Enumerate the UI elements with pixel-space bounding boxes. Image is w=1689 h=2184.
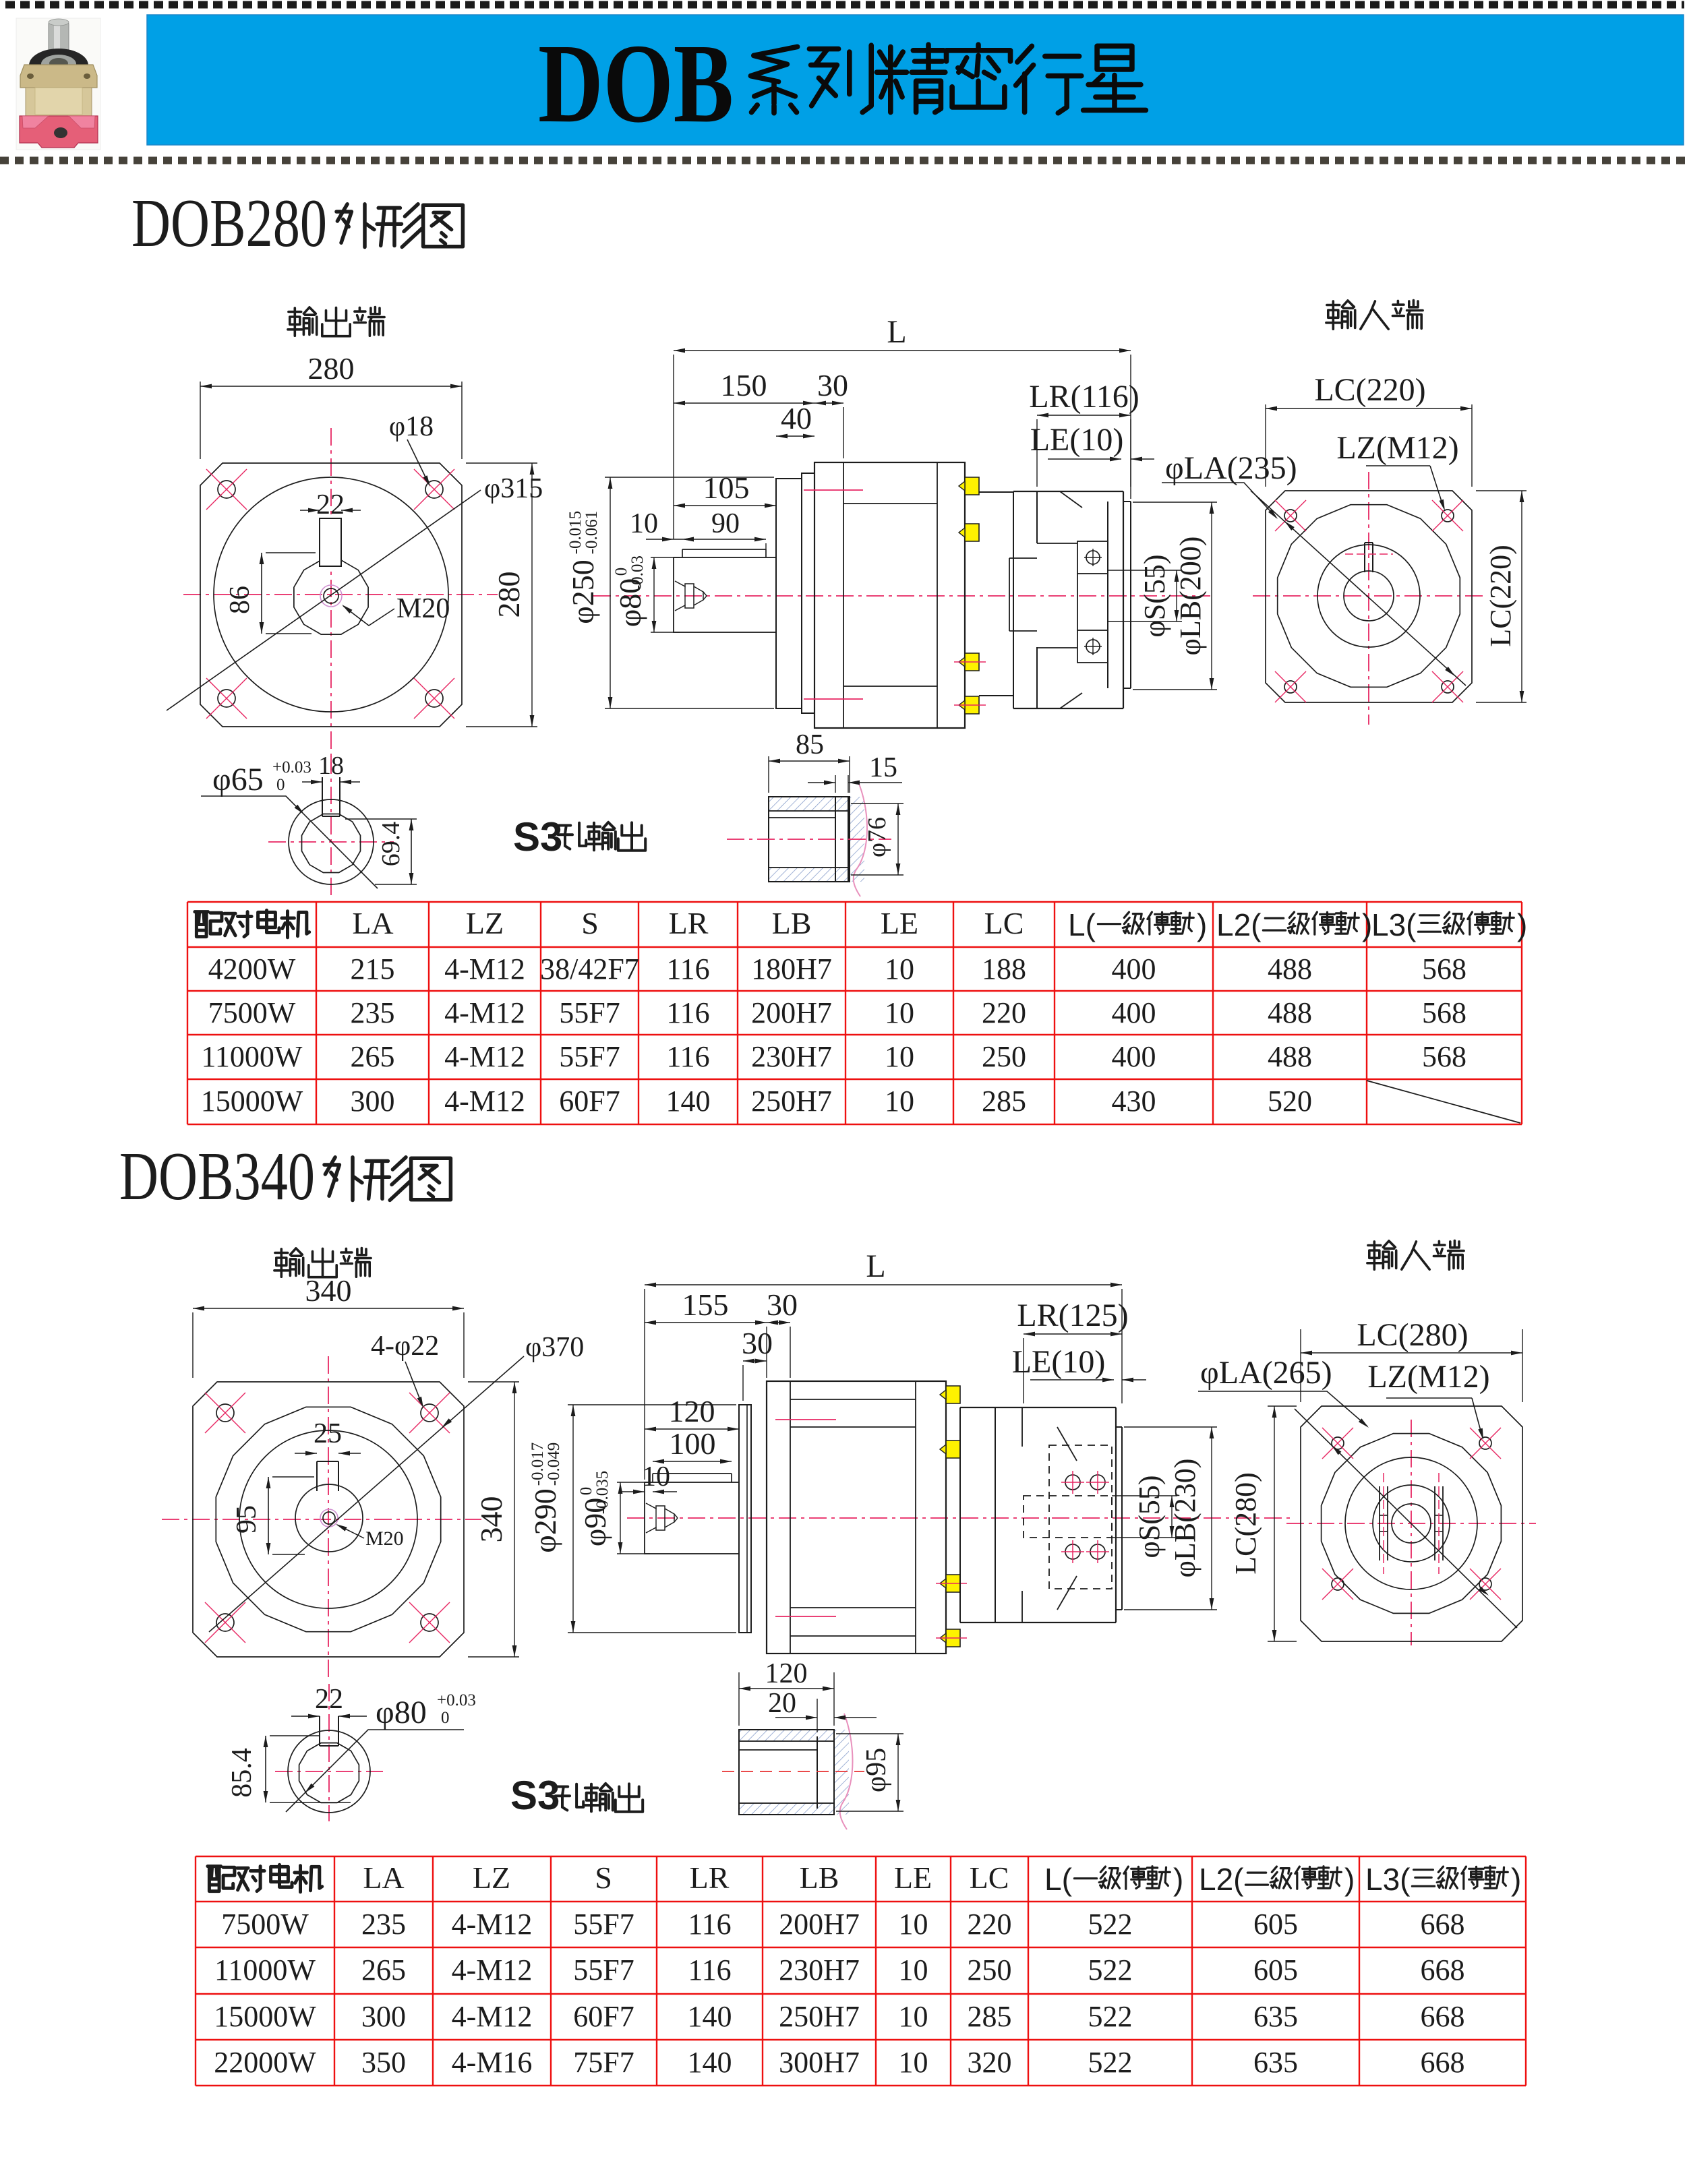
- svg-text:75F7: 75F7: [573, 2046, 634, 2079]
- svg-text:φLA(235): φLA(235): [1165, 450, 1297, 486]
- svg-text:10: 10: [642, 1461, 670, 1492]
- svg-text:φ18: φ18: [389, 411, 434, 442]
- svg-text:4-M16: 4-M16: [452, 2046, 533, 2079]
- svg-text:200H7: 200H7: [779, 1908, 860, 1941]
- svg-text:20: 20: [768, 1688, 796, 1719]
- svg-text:11000W: 11000W: [214, 1953, 316, 1986]
- svg-text:4-M12: 4-M12: [452, 2000, 533, 2033]
- svg-text:116: 116: [666, 996, 709, 1029]
- svg-text:L: L: [866, 1248, 885, 1284]
- svg-text:522: 522: [1088, 1908, 1133, 1941]
- svg-text:95: 95: [231, 1505, 262, 1534]
- svg-text:LC(220): LC(220): [1314, 372, 1425, 408]
- svg-text:488: 488: [1268, 996, 1312, 1029]
- svg-text:69.4: 69.4: [377, 822, 405, 867]
- svg-text:300: 300: [351, 1085, 395, 1118]
- svg-text:22: 22: [315, 1684, 343, 1715]
- svg-text:10: 10: [885, 1040, 914, 1073]
- svg-text:22: 22: [316, 489, 345, 520]
- svg-text:LE(10): LE(10): [1030, 422, 1124, 458]
- svg-text:668: 668: [1421, 2046, 1465, 2079]
- svg-text:DOB340: DOB340: [119, 1139, 315, 1215]
- svg-text:22000W: 22000W: [214, 2046, 316, 2079]
- svg-text:): ): [1197, 907, 1207, 942]
- svg-text:430: 430: [1112, 1085, 1156, 1118]
- svg-text:LA: LA: [363, 1860, 404, 1895]
- svg-text:400: 400: [1112, 952, 1156, 985]
- svg-text:85: 85: [796, 729, 824, 760]
- svg-text:230H7: 230H7: [751, 1040, 832, 1073]
- svg-text:568: 568: [1422, 1040, 1466, 1073]
- svg-text:LC: LC: [970, 1860, 1009, 1895]
- svg-text:LC(280): LC(280): [1229, 1472, 1262, 1575]
- svg-text:LE: LE: [894, 1860, 932, 1895]
- svg-text:φ315: φ315: [484, 473, 543, 504]
- svg-text:280: 280: [492, 572, 526, 618]
- svg-text:LB: LB: [800, 1860, 839, 1895]
- svg-text:LC(280): LC(280): [1357, 1317, 1468, 1353]
- svg-text:350: 350: [361, 2046, 406, 2079]
- svg-text:S: S: [581, 906, 599, 940]
- svg-text:φ65: φ65: [212, 762, 264, 797]
- svg-text:LE: LE: [881, 906, 918, 940]
- svg-text:300: 300: [361, 2000, 406, 2033]
- svg-text:25: 25: [314, 1418, 342, 1449]
- svg-text:250H7: 250H7: [751, 1085, 832, 1118]
- svg-text:140: 140: [688, 2000, 732, 2033]
- svg-text:522: 522: [1088, 2000, 1133, 2033]
- svg-text:LC: LC: [984, 906, 1024, 940]
- svg-text:635: 635: [1253, 2000, 1298, 2033]
- svg-text:30: 30: [742, 1326, 773, 1360]
- svg-text:86: 86: [225, 586, 256, 614]
- svg-text:265: 265: [361, 1953, 406, 1986]
- svg-text:S: S: [595, 1860, 612, 1895]
- svg-text:635: 635: [1253, 2046, 1298, 2079]
- svg-text:φS(55): φS(55): [1138, 554, 1171, 637]
- svg-text:LZ: LZ: [466, 906, 504, 940]
- svg-text:116: 116: [688, 1953, 731, 1986]
- svg-text:φS(55): φS(55): [1133, 1475, 1166, 1558]
- svg-text:7500W: 7500W: [221, 1908, 309, 1941]
- svg-text:220: 220: [982, 996, 1026, 1029]
- svg-text:250H7: 250H7: [779, 2000, 860, 2033]
- svg-text:668: 668: [1421, 2000, 1465, 2033]
- svg-text:180H7: 180H7: [751, 952, 832, 985]
- svg-text:L2(: L2(: [1216, 907, 1262, 942]
- svg-text:15000W: 15000W: [201, 1085, 303, 1118]
- svg-text:S3: S3: [510, 1773, 560, 1818]
- svg-text:LA: LA: [352, 906, 393, 940]
- svg-text:LR: LR: [690, 1860, 730, 1895]
- svg-text:488: 488: [1268, 952, 1312, 985]
- svg-text:55F7: 55F7: [559, 996, 620, 1029]
- svg-text:60F7: 60F7: [559, 1085, 620, 1118]
- svg-text:): ): [1173, 1862, 1183, 1897]
- svg-text:7500W: 7500W: [208, 996, 296, 1029]
- svg-text:-0.017: -0.017: [529, 1443, 547, 1486]
- svg-text:605: 605: [1253, 1953, 1298, 1986]
- svg-text:320: 320: [968, 2046, 1012, 2079]
- svg-text:200H7: 200H7: [751, 996, 832, 1029]
- svg-text:LR: LR: [669, 906, 709, 940]
- svg-text:φ370: φ370: [525, 1332, 584, 1363]
- svg-text:4-M12: 4-M12: [444, 1085, 525, 1118]
- svg-text:0: 0: [276, 776, 285, 794]
- svg-text:4200W: 4200W: [208, 952, 296, 985]
- svg-text:285: 285: [982, 1085, 1026, 1118]
- svg-text:): ): [1517, 907, 1527, 942]
- svg-text:340: 340: [305, 1273, 352, 1308]
- svg-text:38/42F7: 38/42F7: [540, 952, 639, 985]
- svg-text:10: 10: [885, 952, 914, 985]
- svg-text:LR(116): LR(116): [1029, 379, 1139, 415]
- svg-text:-0.035: -0.035: [593, 1471, 612, 1515]
- svg-text:250: 250: [982, 1040, 1026, 1073]
- svg-text:L2(: L2(: [1199, 1862, 1244, 1897]
- svg-text:605: 605: [1253, 1908, 1298, 1941]
- svg-text:188: 188: [982, 952, 1026, 985]
- svg-text:10: 10: [899, 1953, 928, 1986]
- svg-text:0: 0: [577, 1487, 595, 1496]
- svg-text:φLB(200): φLB(200): [1174, 537, 1207, 656]
- svg-text:40: 40: [781, 401, 812, 435]
- svg-text:400: 400: [1112, 996, 1156, 1029]
- svg-text:30: 30: [767, 1287, 798, 1322]
- svg-text:10: 10: [630, 508, 658, 539]
- svg-text:0: 0: [612, 568, 630, 576]
- svg-text:φ80: φ80: [376, 1695, 427, 1730]
- svg-text:400: 400: [1112, 1040, 1156, 1073]
- svg-text:15000W: 15000W: [214, 2000, 316, 2033]
- svg-text:φ76: φ76: [863, 817, 891, 857]
- svg-text:L3(: L3(: [1365, 1862, 1411, 1897]
- svg-text:): ): [1511, 1862, 1521, 1897]
- svg-text:668: 668: [1421, 1908, 1465, 1941]
- svg-text:L3(: L3(: [1371, 907, 1417, 942]
- svg-text:116: 116: [688, 1908, 731, 1941]
- svg-text:DOB: DOB: [538, 21, 734, 146]
- svg-text:488: 488: [1268, 1040, 1312, 1073]
- svg-text:S3: S3: [513, 814, 562, 859]
- svg-text:100: 100: [670, 1426, 716, 1461]
- svg-text:+0.03: +0.03: [272, 758, 312, 777]
- svg-text:M20: M20: [365, 1527, 404, 1550]
- svg-text:250: 250: [968, 1953, 1012, 1986]
- svg-text:105: 105: [703, 471, 750, 505]
- svg-text:230H7: 230H7: [779, 1953, 860, 1986]
- svg-text:340: 340: [474, 1496, 508, 1543]
- svg-text:LC(220): LC(220): [1484, 545, 1517, 647]
- svg-text:-0.049: -0.049: [545, 1443, 563, 1486]
- svg-text:668: 668: [1421, 1953, 1465, 1986]
- svg-text:568: 568: [1422, 996, 1466, 1029]
- svg-text:L(: L(: [1068, 907, 1096, 942]
- svg-text:140: 140: [688, 2046, 732, 2079]
- svg-text:522: 522: [1088, 1953, 1133, 1986]
- svg-text:55F7: 55F7: [559, 1040, 620, 1073]
- svg-text:10: 10: [899, 1908, 928, 1941]
- svg-text:4-M12: 4-M12: [444, 952, 525, 985]
- svg-text:235: 235: [361, 1908, 406, 1941]
- svg-text:LZ: LZ: [473, 1860, 510, 1895]
- svg-text:10: 10: [899, 2000, 928, 2033]
- svg-text:265: 265: [351, 1040, 395, 1073]
- svg-text:-0.03: -0.03: [628, 555, 647, 590]
- svg-text:120: 120: [765, 1658, 808, 1689]
- svg-text:LZ(M12): LZ(M12): [1367, 1359, 1489, 1395]
- svg-text:55F7: 55F7: [573, 1953, 634, 1986]
- svg-text:520: 520: [1268, 1085, 1312, 1118]
- svg-text:LZ(M12): LZ(M12): [1336, 430, 1458, 466]
- svg-text:φ290: φ290: [528, 1488, 562, 1553]
- svg-text:LB: LB: [772, 906, 812, 940]
- svg-text:+0.03: +0.03: [437, 1691, 476, 1709]
- svg-text:DOB280: DOB280: [131, 185, 327, 262]
- svg-text:10: 10: [885, 1085, 914, 1118]
- svg-text:60F7: 60F7: [573, 2000, 634, 2033]
- svg-text:522: 522: [1088, 2046, 1133, 2079]
- svg-text:280: 280: [308, 351, 355, 386]
- svg-text:LR(125): LR(125): [1017, 1298, 1128, 1333]
- svg-text:4-M12: 4-M12: [444, 996, 525, 1029]
- svg-text:300H7: 300H7: [779, 2046, 860, 2079]
- svg-text:φ250: φ250: [566, 559, 600, 624]
- svg-text:215: 215: [351, 952, 395, 985]
- svg-text:55F7: 55F7: [573, 1908, 634, 1941]
- svg-text:116: 116: [666, 1040, 709, 1073]
- svg-text:90: 90: [711, 508, 740, 539]
- svg-text:4-φ22: 4-φ22: [371, 1331, 439, 1362]
- svg-text:0: 0: [441, 1709, 450, 1727]
- svg-text:120: 120: [669, 1394, 715, 1428]
- svg-text:155: 155: [682, 1287, 729, 1322]
- svg-text:116: 116: [666, 952, 709, 985]
- svg-text:10: 10: [899, 2046, 928, 2079]
- svg-text:568: 568: [1422, 952, 1466, 985]
- svg-text:-0.015: -0.015: [566, 511, 585, 555]
- svg-text:L: L: [887, 314, 906, 350]
- svg-text:285: 285: [968, 2000, 1012, 2033]
- svg-text:150: 150: [721, 368, 767, 402]
- svg-text:): ): [1344, 1862, 1355, 1897]
- svg-text:10: 10: [885, 996, 914, 1029]
- svg-text:11000W: 11000W: [202, 1040, 303, 1073]
- svg-text:4-M12: 4-M12: [452, 1908, 533, 1941]
- svg-text:4-M12: 4-M12: [444, 1040, 525, 1073]
- svg-text:85.4: 85.4: [227, 1748, 258, 1798]
- svg-text:4-M12: 4-M12: [452, 1953, 533, 1986]
- svg-text:220: 220: [968, 1908, 1012, 1941]
- svg-text:M20: M20: [396, 593, 450, 624]
- svg-text:18: 18: [318, 752, 344, 780]
- svg-text:30: 30: [817, 368, 848, 402]
- svg-text:φLB(230): φLB(230): [1168, 1459, 1202, 1578]
- svg-text:φLA(265): φLA(265): [1200, 1355, 1332, 1391]
- svg-text:140: 140: [666, 1085, 711, 1118]
- svg-text:LE(10): LE(10): [1012, 1344, 1106, 1380]
- svg-text:235: 235: [351, 996, 395, 1029]
- svg-text:15: 15: [869, 752, 897, 783]
- svg-text:φ95: φ95: [861, 1748, 892, 1792]
- svg-text:L(: L(: [1044, 1862, 1073, 1897]
- svg-text:-0.061: -0.061: [583, 511, 601, 555]
